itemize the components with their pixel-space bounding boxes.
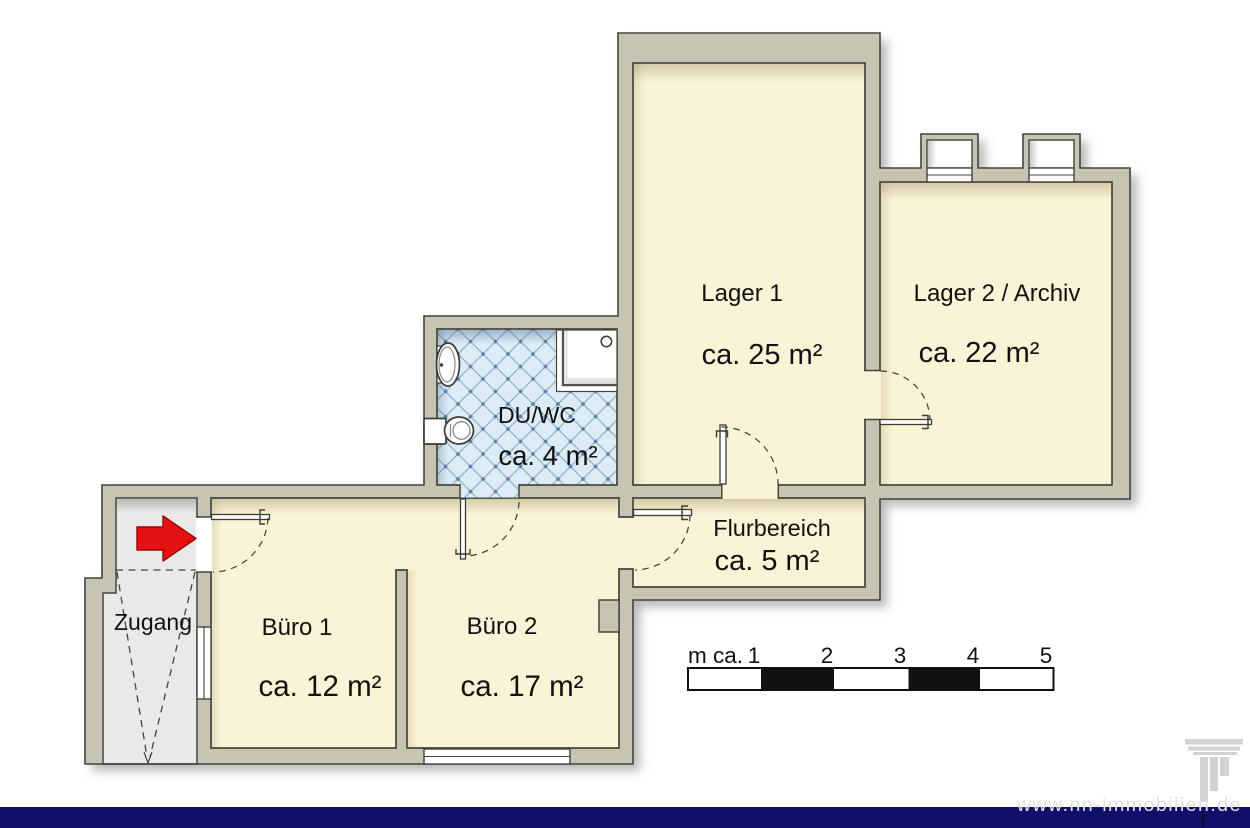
svg-text:1: 1 [748, 643, 761, 668]
svg-text:ca. 25 m²: ca. 25 m² [702, 339, 823, 371]
svg-text:ca. 5 m²: ca. 5 m² [715, 545, 820, 577]
svg-text:Lager 1: Lager 1 [701, 280, 782, 307]
svg-text:m ca.: m ca. [688, 643, 743, 668]
svg-text:Zugang: Zugang [114, 609, 192, 635]
svg-text:2: 2 [821, 643, 834, 668]
svg-text:3: 3 [894, 643, 907, 668]
svg-text:Büro 2: Büro 2 [467, 613, 538, 640]
svg-text:5: 5 [1040, 643, 1053, 668]
svg-text:www.nn-immobilien.de: www.nn-immobilien.de [1016, 794, 1242, 816]
svg-text:Lager 2 / Archiv: Lager 2 / Archiv [914, 280, 1081, 307]
svg-text:ca. 12 m²: ca. 12 m² [259, 670, 382, 703]
svg-text:4: 4 [967, 643, 980, 668]
svg-text:ca. 4 m²: ca. 4 m² [498, 440, 597, 471]
svg-text:ca. 17 m²: ca. 17 m² [461, 670, 584, 703]
svg-text:DU/WC: DU/WC [498, 402, 576, 428]
svg-text:ca. 22 m²: ca. 22 m² [919, 337, 1040, 369]
svg-text:Flurbereich: Flurbereich [713, 515, 831, 541]
svg-text:Büro 1: Büro 1 [262, 614, 333, 641]
